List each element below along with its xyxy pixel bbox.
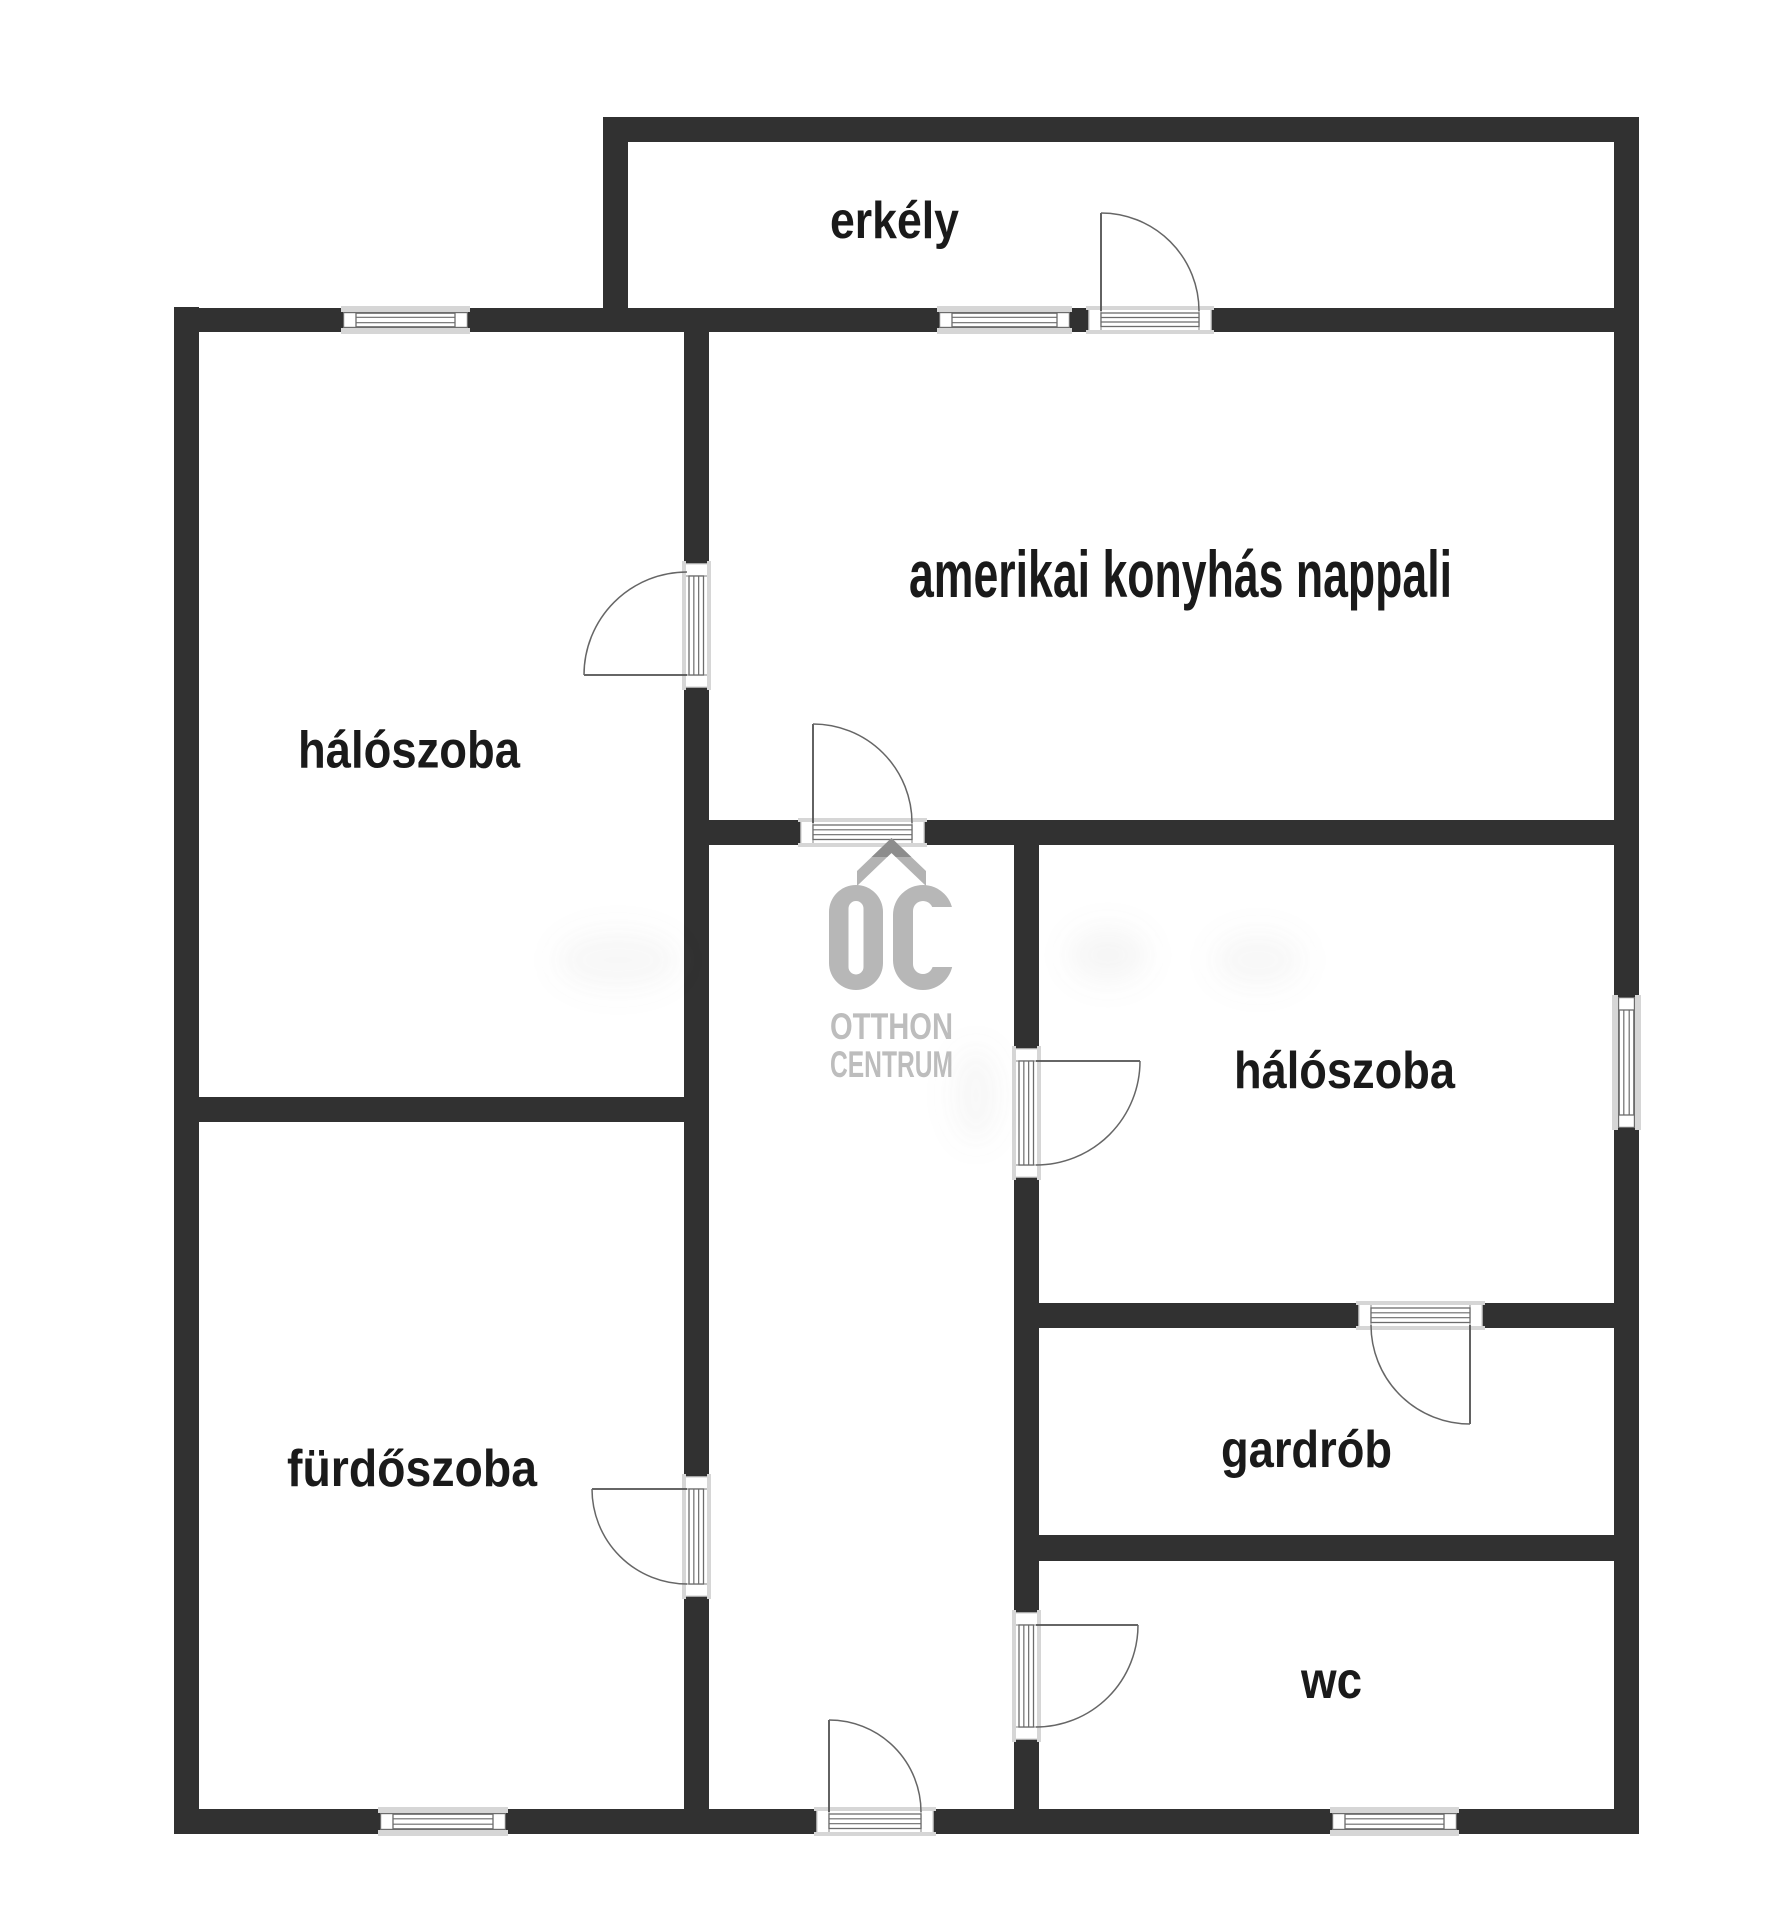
- svg-text:gardrób: gardrób: [1221, 1421, 1392, 1479]
- svg-text:erkély: erkély: [830, 192, 959, 250]
- svg-text:OTTHON: OTTHON: [830, 1006, 953, 1047]
- svg-text:wc: wc: [1300, 1652, 1362, 1710]
- svg-text:CENTRUM: CENTRUM: [830, 1044, 953, 1085]
- svg-text:fürdőszoba: fürdőszoba: [287, 1440, 538, 1498]
- svg-text:hálószoba: hálószoba: [1234, 1042, 1456, 1100]
- svg-text:hálószoba: hálószoba: [298, 722, 521, 780]
- svg-text:amerikai konyhás nappali: amerikai konyhás nappali: [909, 537, 1452, 611]
